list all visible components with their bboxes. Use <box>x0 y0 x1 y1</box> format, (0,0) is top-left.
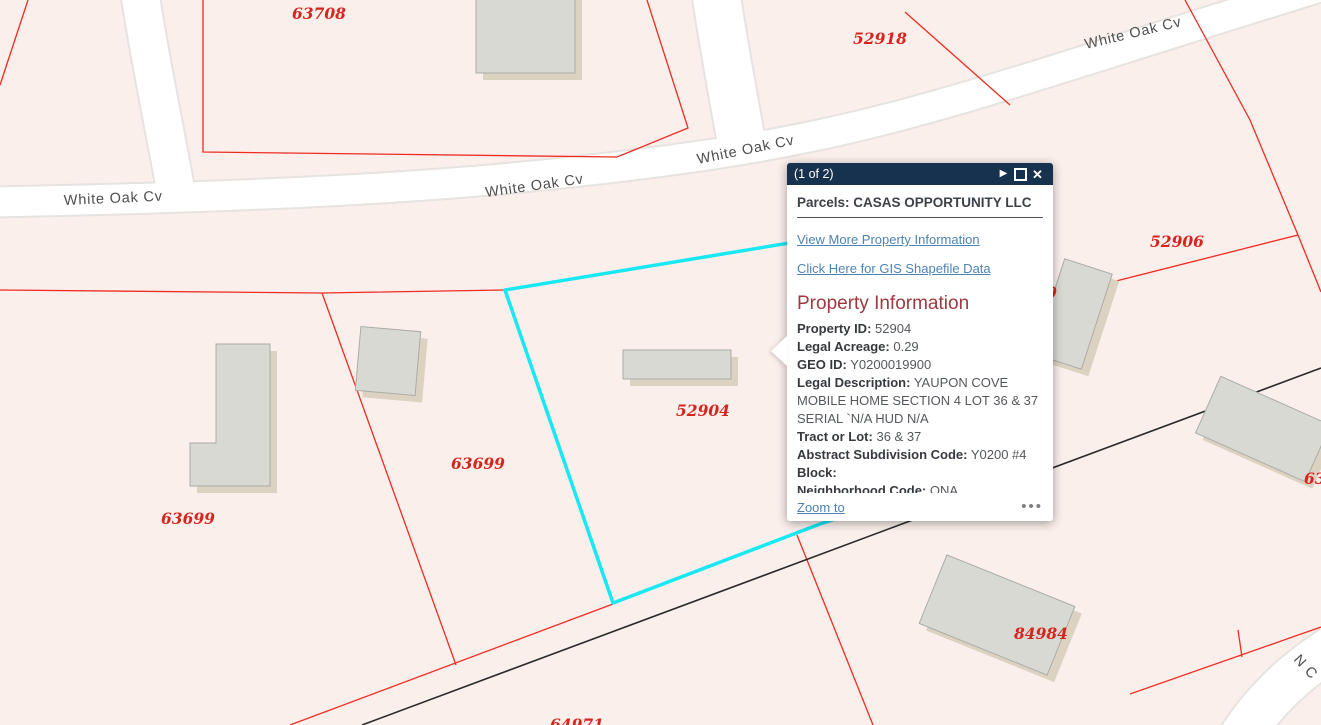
gis-map[interactable]: White Oak Cv White Oak Cv White Oak Cv W… <box>0 0 1321 725</box>
field-tract-or-lot: Tract or Lot: 36 & 37 <box>797 428 1043 446</box>
parcel-line <box>1185 0 1321 292</box>
parcel-number: 52906 <box>1150 232 1204 251</box>
property-popup: (1 of 2) ▶ ✕ Parcels: CASAS OPPORTUNITY … <box>787 163 1053 521</box>
parcel-number: 63699 <box>161 509 215 528</box>
popup-pointer <box>771 336 787 366</box>
parcel-number: 63708 <box>292 4 346 23</box>
parcel-number: 63699 <box>451 454 505 473</box>
popup-footer: Zoom to ••• <box>797 493 1043 521</box>
view-more-property-info-link[interactable]: View More Property Information <box>797 232 1043 247</box>
property-fields: Property ID: 52904 Legal Acreage: 0.29 G… <box>797 320 1043 518</box>
building <box>355 327 420 396</box>
parcel-number: 64971 <box>550 715 604 725</box>
popup-header: (1 of 2) ▶ ✕ <box>787 163 1053 185</box>
popup-body: Parcels: CASAS OPPORTUNITY LLC View More… <box>787 185 1053 521</box>
field-property-id: Property ID: 52904 <box>797 320 1043 338</box>
gis-shapefile-link[interactable]: Click Here for GIS Shapefile Data <box>797 261 1043 276</box>
field-legal-acreage: Legal Acreage: 0.29 <box>797 338 1043 356</box>
parcel-number: 52904 <box>676 401 730 420</box>
close-button[interactable]: ✕ <box>1029 165 1046 183</box>
parcel-line <box>290 604 613 725</box>
parcel-line <box>797 535 873 725</box>
field-abstract-subdivision-code: Abstract Subdivision Code: Y0200 #4 <box>797 446 1043 464</box>
maximize-icon <box>1014 168 1027 181</box>
parcel-line <box>203 0 688 157</box>
field-legal-description: Legal Description: YAUPON COVE MOBILE HO… <box>797 374 1043 428</box>
parcel-number: 63 <box>1304 469 1321 488</box>
more-options-icon[interactable]: ••• <box>1021 502 1043 512</box>
building-l-shape <box>190 344 270 486</box>
parcel-number: 84984 <box>1014 624 1068 643</box>
parcel-line <box>0 0 28 85</box>
field-geo-id: GEO ID: Y0200019900 <box>797 356 1043 374</box>
road-branch-left <box>140 0 176 192</box>
parcel-number: 52918 <box>853 29 907 48</box>
building <box>476 0 575 73</box>
popup-pagination: (1 of 2) <box>794 167 995 181</box>
field-block: Block: <box>797 464 1043 482</box>
parcel-line <box>0 290 505 293</box>
popup-title: Parcels: CASAS OPPORTUNITY LLC <box>797 195 1043 210</box>
road-branch-top <box>716 0 743 152</box>
title-divider <box>797 217 1043 218</box>
map-canvas[interactable]: White Oak Cv White Oak Cv White Oak Cv W… <box>0 0 1321 725</box>
building <box>623 350 731 379</box>
next-feature-button[interactable]: ▶ <box>995 165 1012 183</box>
maximize-button[interactable] <box>1012 165 1029 183</box>
zoom-to-link[interactable]: Zoom to <box>797 500 845 515</box>
parcel-line <box>1238 630 1242 657</box>
close-icon: ✕ <box>1032 168 1043 181</box>
property-information-heading: Property Information <box>797 293 1043 315</box>
next-arrow-icon: ▶ <box>1000 169 1008 179</box>
